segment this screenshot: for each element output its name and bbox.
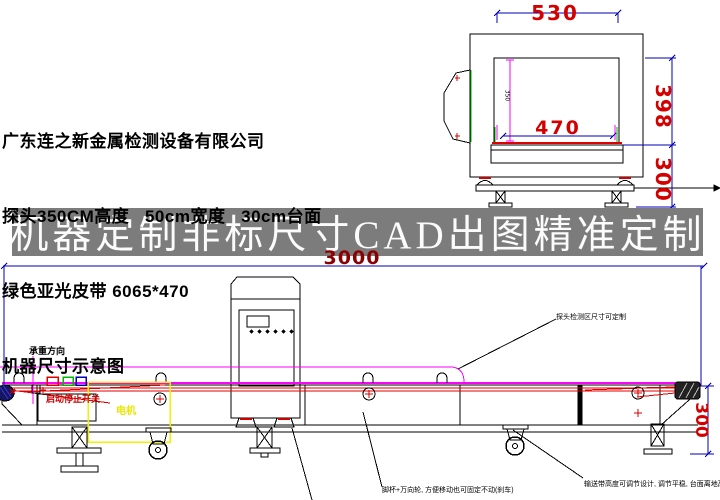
caster-right xyxy=(503,425,528,455)
label-motor: 电机 xyxy=(116,402,136,417)
dim-total-length: 3000 xyxy=(312,247,392,269)
company-name: 广东连之新金属检测设备有限公司 xyxy=(2,129,322,154)
spec-belt: 绿色亚光皮带 6065*470 xyxy=(2,279,322,304)
company-info-block: 广东连之新金属检测设备有限公司 探头350CM高度 50cm宽度 30cm台面 … xyxy=(2,79,322,429)
dim-outer-width: 530 xyxy=(515,1,595,25)
dim-base-height: 300 xyxy=(651,157,675,197)
note-detector-head: 探头检测区尺寸可定制 xyxy=(556,312,626,322)
cad-drawing-page: 机器定制非标尺寸CAD出图精准定制 广东连之新金属检测设备有限公司 探头350C… xyxy=(0,0,720,500)
label-start-stop-switch: 启动停止开关 xyxy=(46,392,100,405)
dim-belt-height: 300 xyxy=(691,400,711,440)
dim-aperture-inner: 350 xyxy=(504,81,511,111)
leg-left xyxy=(57,427,101,472)
dim-belt-width: 470 xyxy=(518,117,598,139)
front-view-dimensions xyxy=(494,10,676,210)
drawing-title: 机器尺寸示意图 xyxy=(2,354,322,379)
spec-probe: 探头350CM高度 50cm宽度 30cm台面 xyxy=(2,204,322,229)
leg-right xyxy=(644,424,672,454)
note-belt-height-text: 输送带高度可调节设计, 调节平稳, 台面离地高度 xyxy=(584,481,720,488)
dim-aperture-height: 398 xyxy=(651,84,675,124)
label-load-direction: 承重方向 xyxy=(29,344,65,357)
leader-lines xyxy=(292,319,583,500)
note-casters: 脚杯+万向轮, 方便移动也可固定不动(刹车) xyxy=(382,485,514,495)
caster-left xyxy=(146,428,171,459)
note-belt-height: 输送带高度可调节设计, 调节平稳, 台面离地高度300 xyxy=(584,477,720,489)
